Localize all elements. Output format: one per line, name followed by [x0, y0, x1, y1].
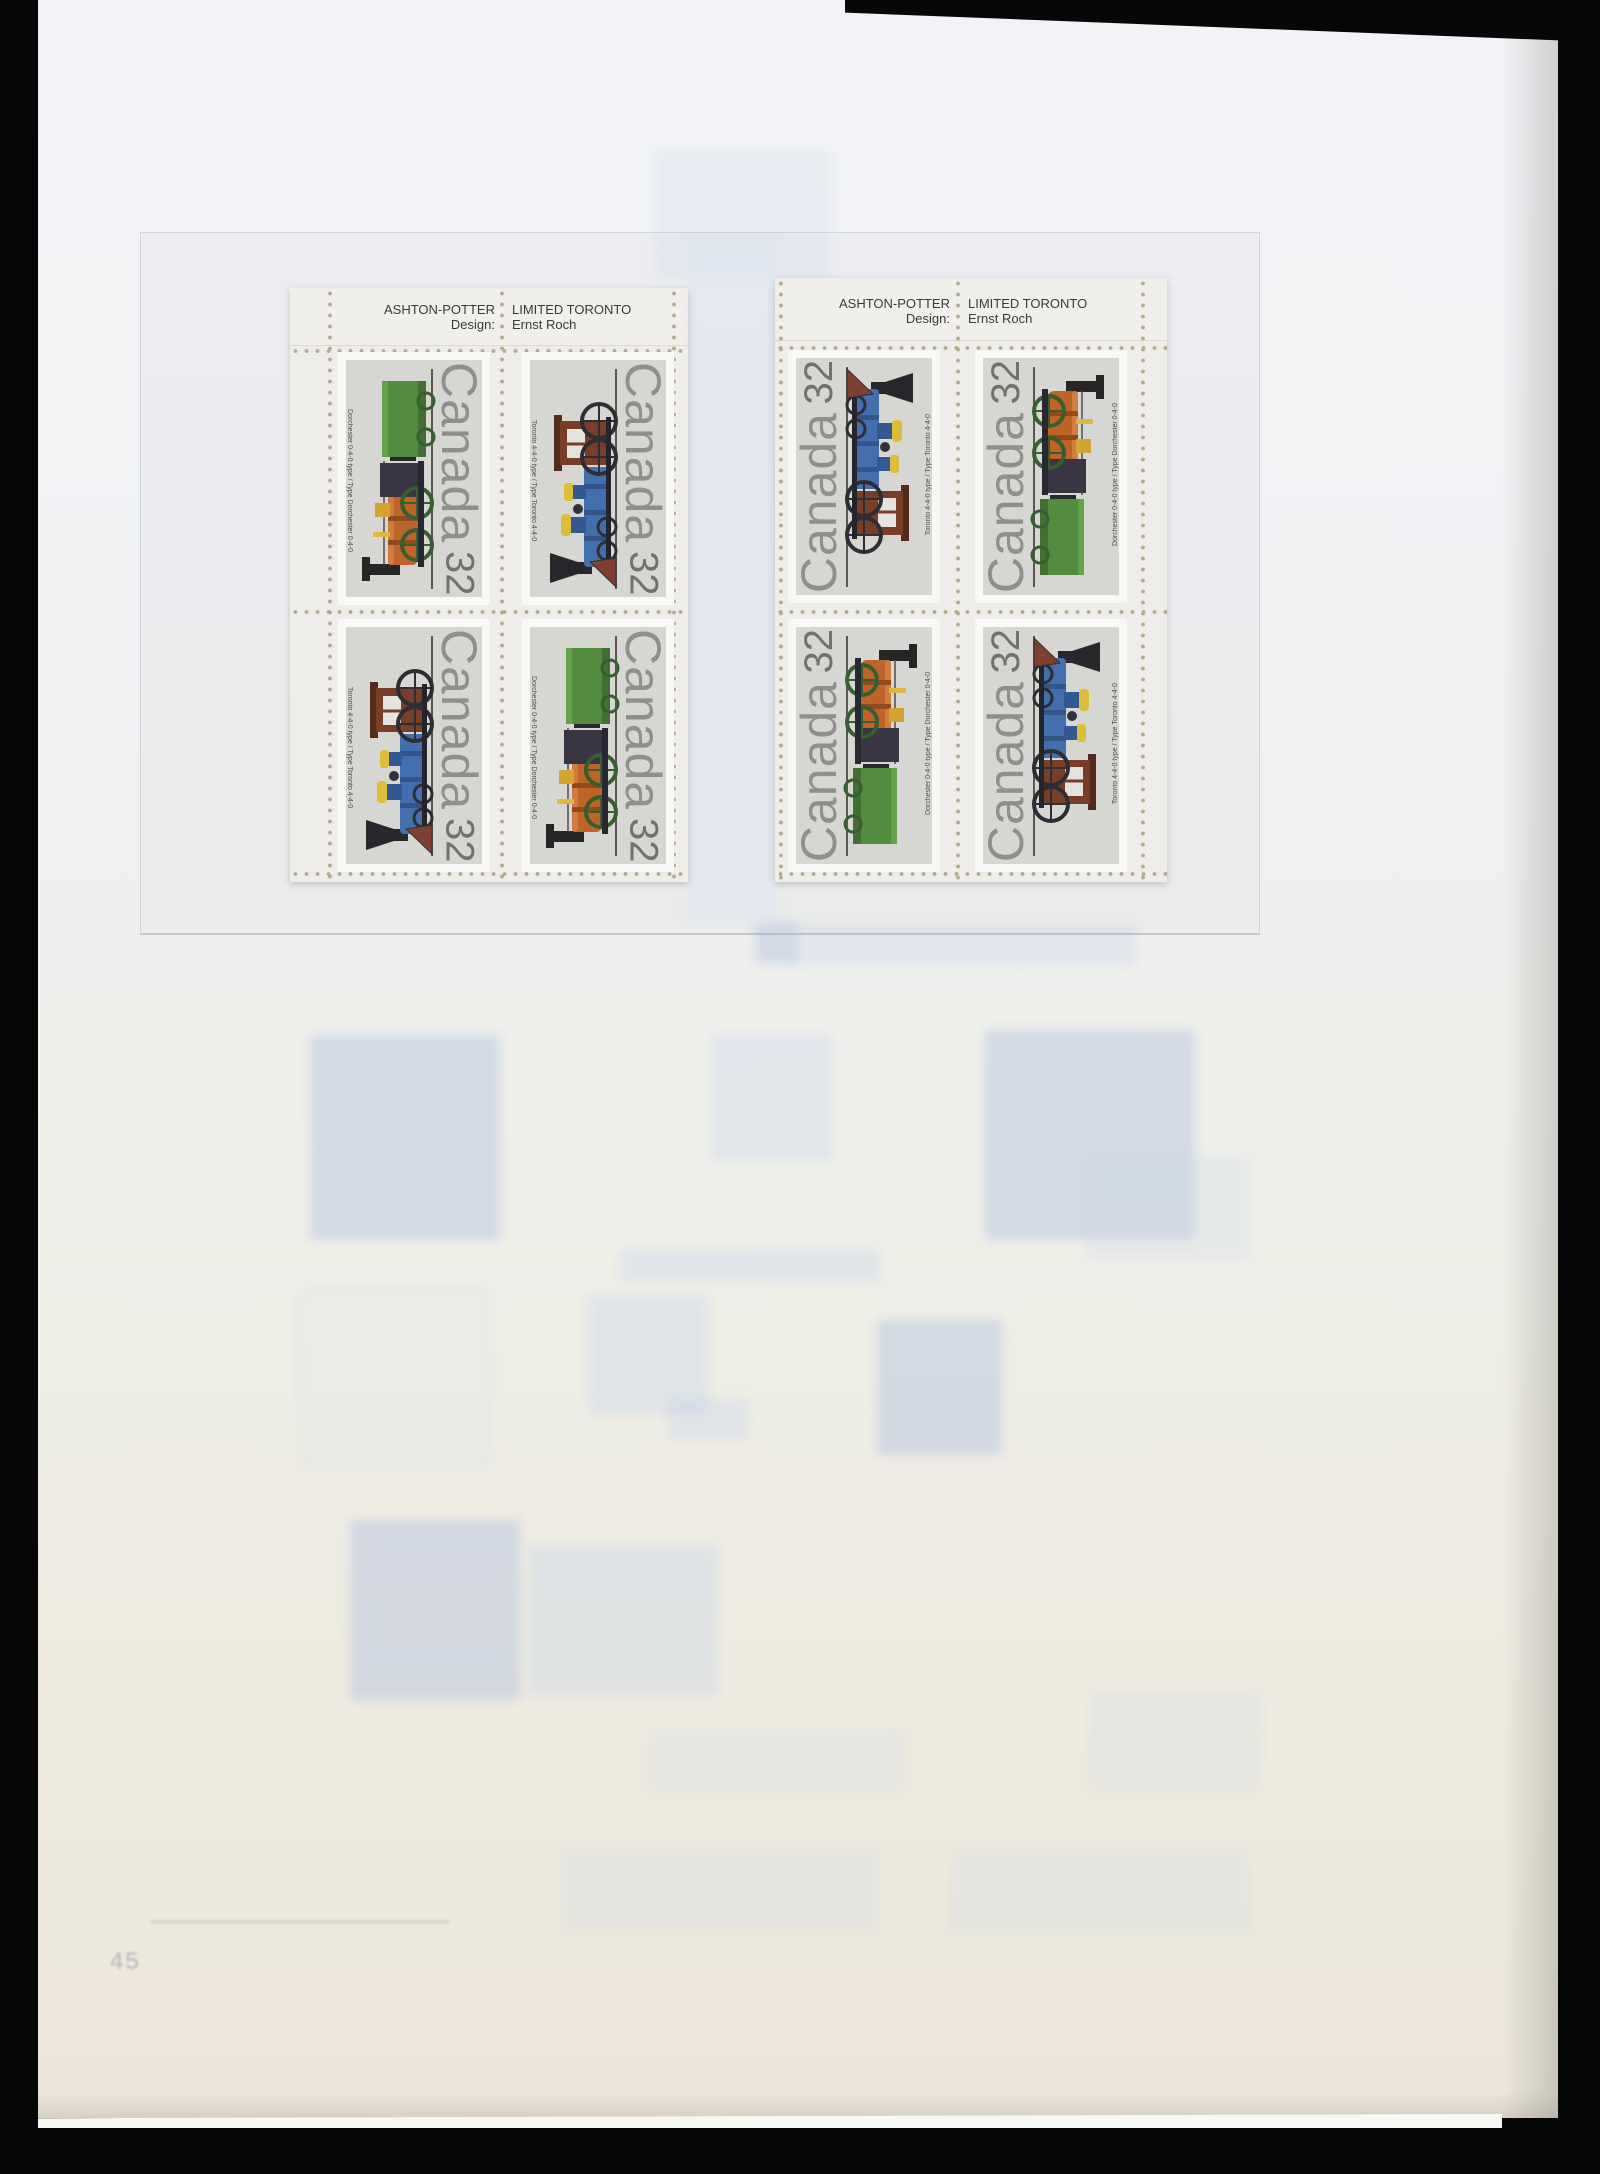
smudge-line: [150, 1920, 450, 1923]
page-edge-shadow-right: [1502, 0, 1560, 2118]
ghost-showthrough: [350, 1520, 520, 1700]
ghost-showthrough: [588, 1295, 708, 1415]
ghost-showthrough: [620, 1250, 880, 1282]
ghost-showthrough: [712, 1035, 832, 1160]
page-edge-shadow-bottom: [38, 2092, 1560, 2118]
ghost-showthrough: [668, 1398, 748, 1440]
ghost-showthrough: [310, 1035, 500, 1240]
ghost-showthrough: [950, 1850, 1250, 1935]
ghost-showthrough: [650, 1730, 905, 1790]
ghost-showthrough: [300, 1292, 489, 1464]
ghost-showthrough: [560, 1850, 880, 1930]
ghost-showthrough: [528, 1545, 718, 1695]
ghost-showthrough: [877, 1320, 1002, 1455]
ghost-showthrough: [1090, 1690, 1260, 1790]
protective-sleeve: [140, 232, 1260, 935]
scan-border-bottom: [0, 2128, 1600, 2174]
ghost-showthrough: [1085, 1155, 1250, 1260]
scan-border-left: [0, 0, 38, 2174]
scan-border-right: [1558, 0, 1600, 2174]
page-number: 45: [110, 1948, 141, 1976]
